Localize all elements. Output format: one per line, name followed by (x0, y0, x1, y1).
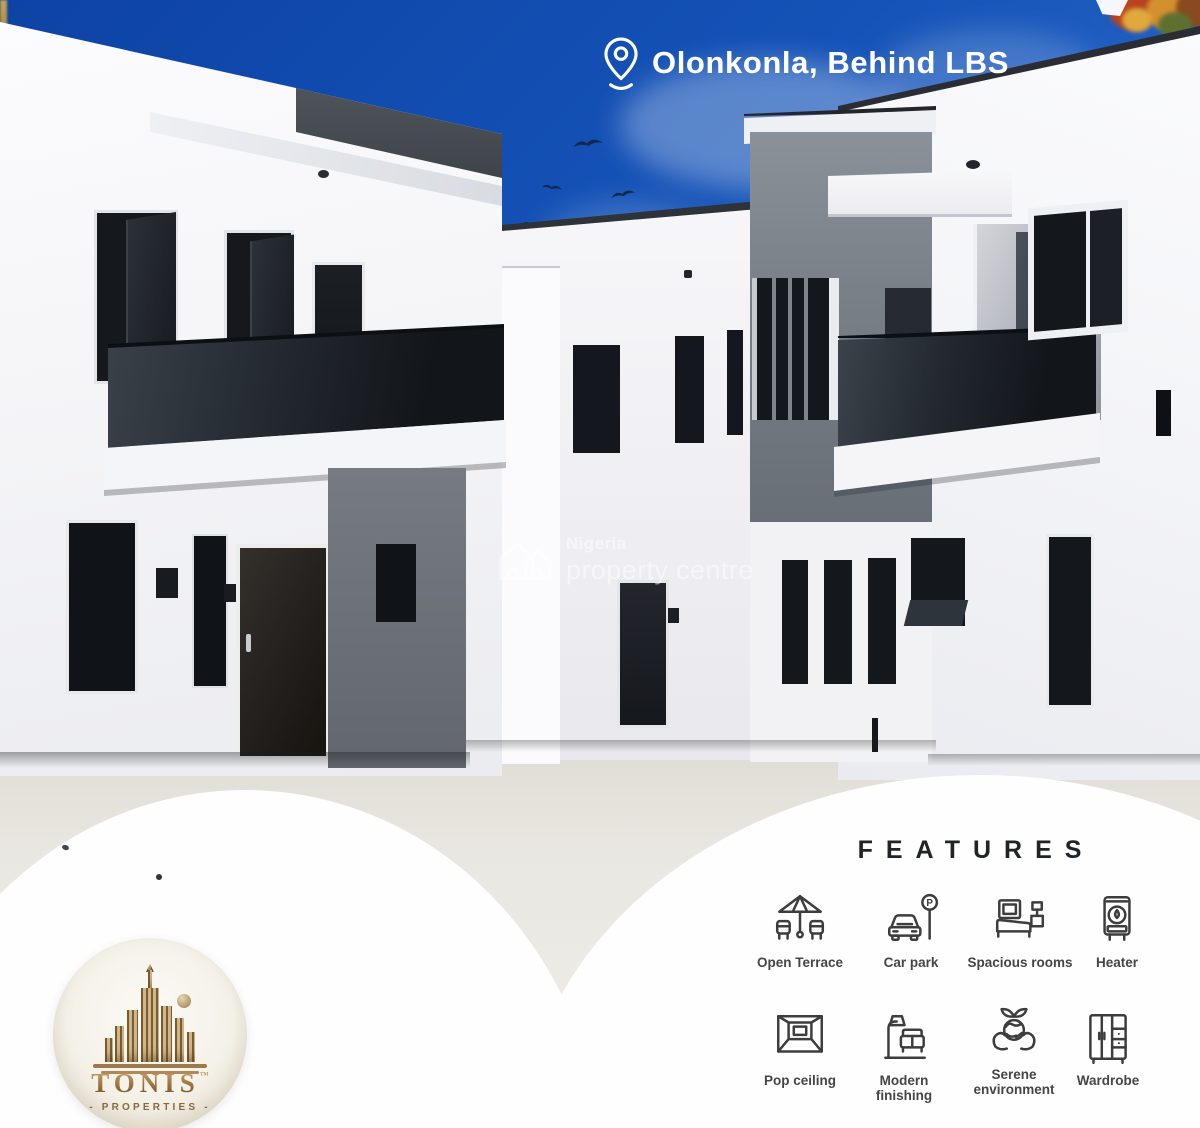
logo-tower (187, 1032, 195, 1062)
louvre-slat (772, 278, 776, 420)
window (66, 520, 138, 694)
ceiling-light (966, 160, 980, 169)
window-frame (1028, 200, 1128, 341)
watermark-brand-bottom: property centre (566, 555, 754, 586)
logo-tower (105, 1038, 113, 1062)
speck (156, 874, 162, 880)
logo-wordmark: TONIS™ (53, 1068, 247, 1099)
feature-label: Car park (884, 955, 939, 970)
feature-spacious-rooms: Spacious rooms (958, 890, 1082, 970)
balcony-slab (828, 170, 1012, 217)
logo-sphere (177, 994, 191, 1008)
pop-ceiling-icon (771, 1008, 829, 1066)
base-shadow (928, 754, 1200, 766)
entry-door (236, 544, 330, 760)
feature-wardrobe: Wardrobe (1060, 1008, 1156, 1088)
window (727, 330, 743, 435)
flower-blob (1122, 8, 1152, 32)
location-text: Olonkonla, Behind LBS (652, 45, 1009, 81)
heater-icon (1088, 890, 1146, 948)
logo-spire (148, 970, 152, 990)
logo-tower (161, 1006, 172, 1062)
feature-label: Pop ceiling (764, 1073, 836, 1088)
utility-box (156, 568, 178, 598)
logo-tower (175, 1018, 184, 1062)
modern-finishing-icon (875, 1008, 933, 1066)
car-park-icon: P (882, 890, 940, 948)
feature-label: Heater (1096, 955, 1138, 970)
feature-serene-environment: Serene environment (956, 1002, 1072, 1097)
watermark-brand-top: Nigeria (566, 534, 754, 554)
vent (1156, 390, 1171, 436)
features-title: FEATURES (760, 836, 1192, 865)
logo-tower (127, 1010, 138, 1062)
logo-brand-text: TONIS (91, 1068, 200, 1098)
logo-subtitle: - PROPERTIES - (53, 1102, 247, 1113)
feature-pop-ceiling: Pop ceiling (748, 1008, 852, 1088)
window (192, 534, 228, 688)
base-shadow (0, 752, 470, 768)
feature-label: Wardrobe (1077, 1073, 1140, 1088)
houses-icon (496, 535, 556, 585)
ceiling-light (318, 170, 329, 178)
window (868, 558, 896, 684)
feature-label: Serene environment (956, 1067, 1072, 1097)
property-flyer: Nigeria property centre Olonkonla, Behin… (0, 0, 1200, 1128)
door (617, 580, 669, 728)
location-badge: Olonkonla, Behind LBS (602, 36, 1009, 90)
wardrobe-icon (1079, 1008, 1137, 1066)
feature-heater: Heater (1072, 890, 1162, 970)
louvre-slat (804, 278, 808, 420)
serene-environment-icon (985, 1002, 1043, 1060)
window (376, 544, 416, 622)
brand-logo: TONIS™ - PROPERTIES - (53, 938, 247, 1128)
window (573, 345, 620, 453)
svg-text:P: P (926, 898, 933, 909)
vent (684, 270, 692, 278)
window (1046, 534, 1094, 708)
window (675, 336, 704, 443)
feature-car-park: P Car park (852, 890, 970, 970)
base-shadow (466, 740, 936, 752)
logo-tower (115, 1026, 124, 1062)
door-handle (246, 634, 251, 652)
logo-tower (141, 988, 159, 1062)
window-pane (1034, 211, 1086, 332)
location-pin-icon (602, 36, 640, 90)
utility-box (668, 608, 679, 623)
louvre-window (757, 278, 829, 420)
feature-open-terrace: Open Terrace (752, 890, 848, 970)
feature-label: Open Terrace (757, 955, 843, 970)
logo-trademark: ™ (200, 1070, 209, 1080)
open-terrace-icon (771, 890, 829, 948)
feature-label: Modern finishing (852, 1073, 956, 1103)
feature-label: Spacious rooms (967, 955, 1072, 970)
louvre-slat (788, 278, 792, 420)
window-frame (829, 278, 839, 420)
window (782, 560, 808, 684)
watermark: Nigeria property centre (496, 534, 754, 586)
window-pane (1090, 208, 1122, 327)
watermark-text: Nigeria property centre (566, 534, 754, 586)
spacious-rooms-icon (991, 890, 1049, 948)
window (824, 560, 852, 684)
feature-modern-finishing: Modern finishing (852, 1008, 956, 1103)
awning-sash (904, 600, 968, 626)
